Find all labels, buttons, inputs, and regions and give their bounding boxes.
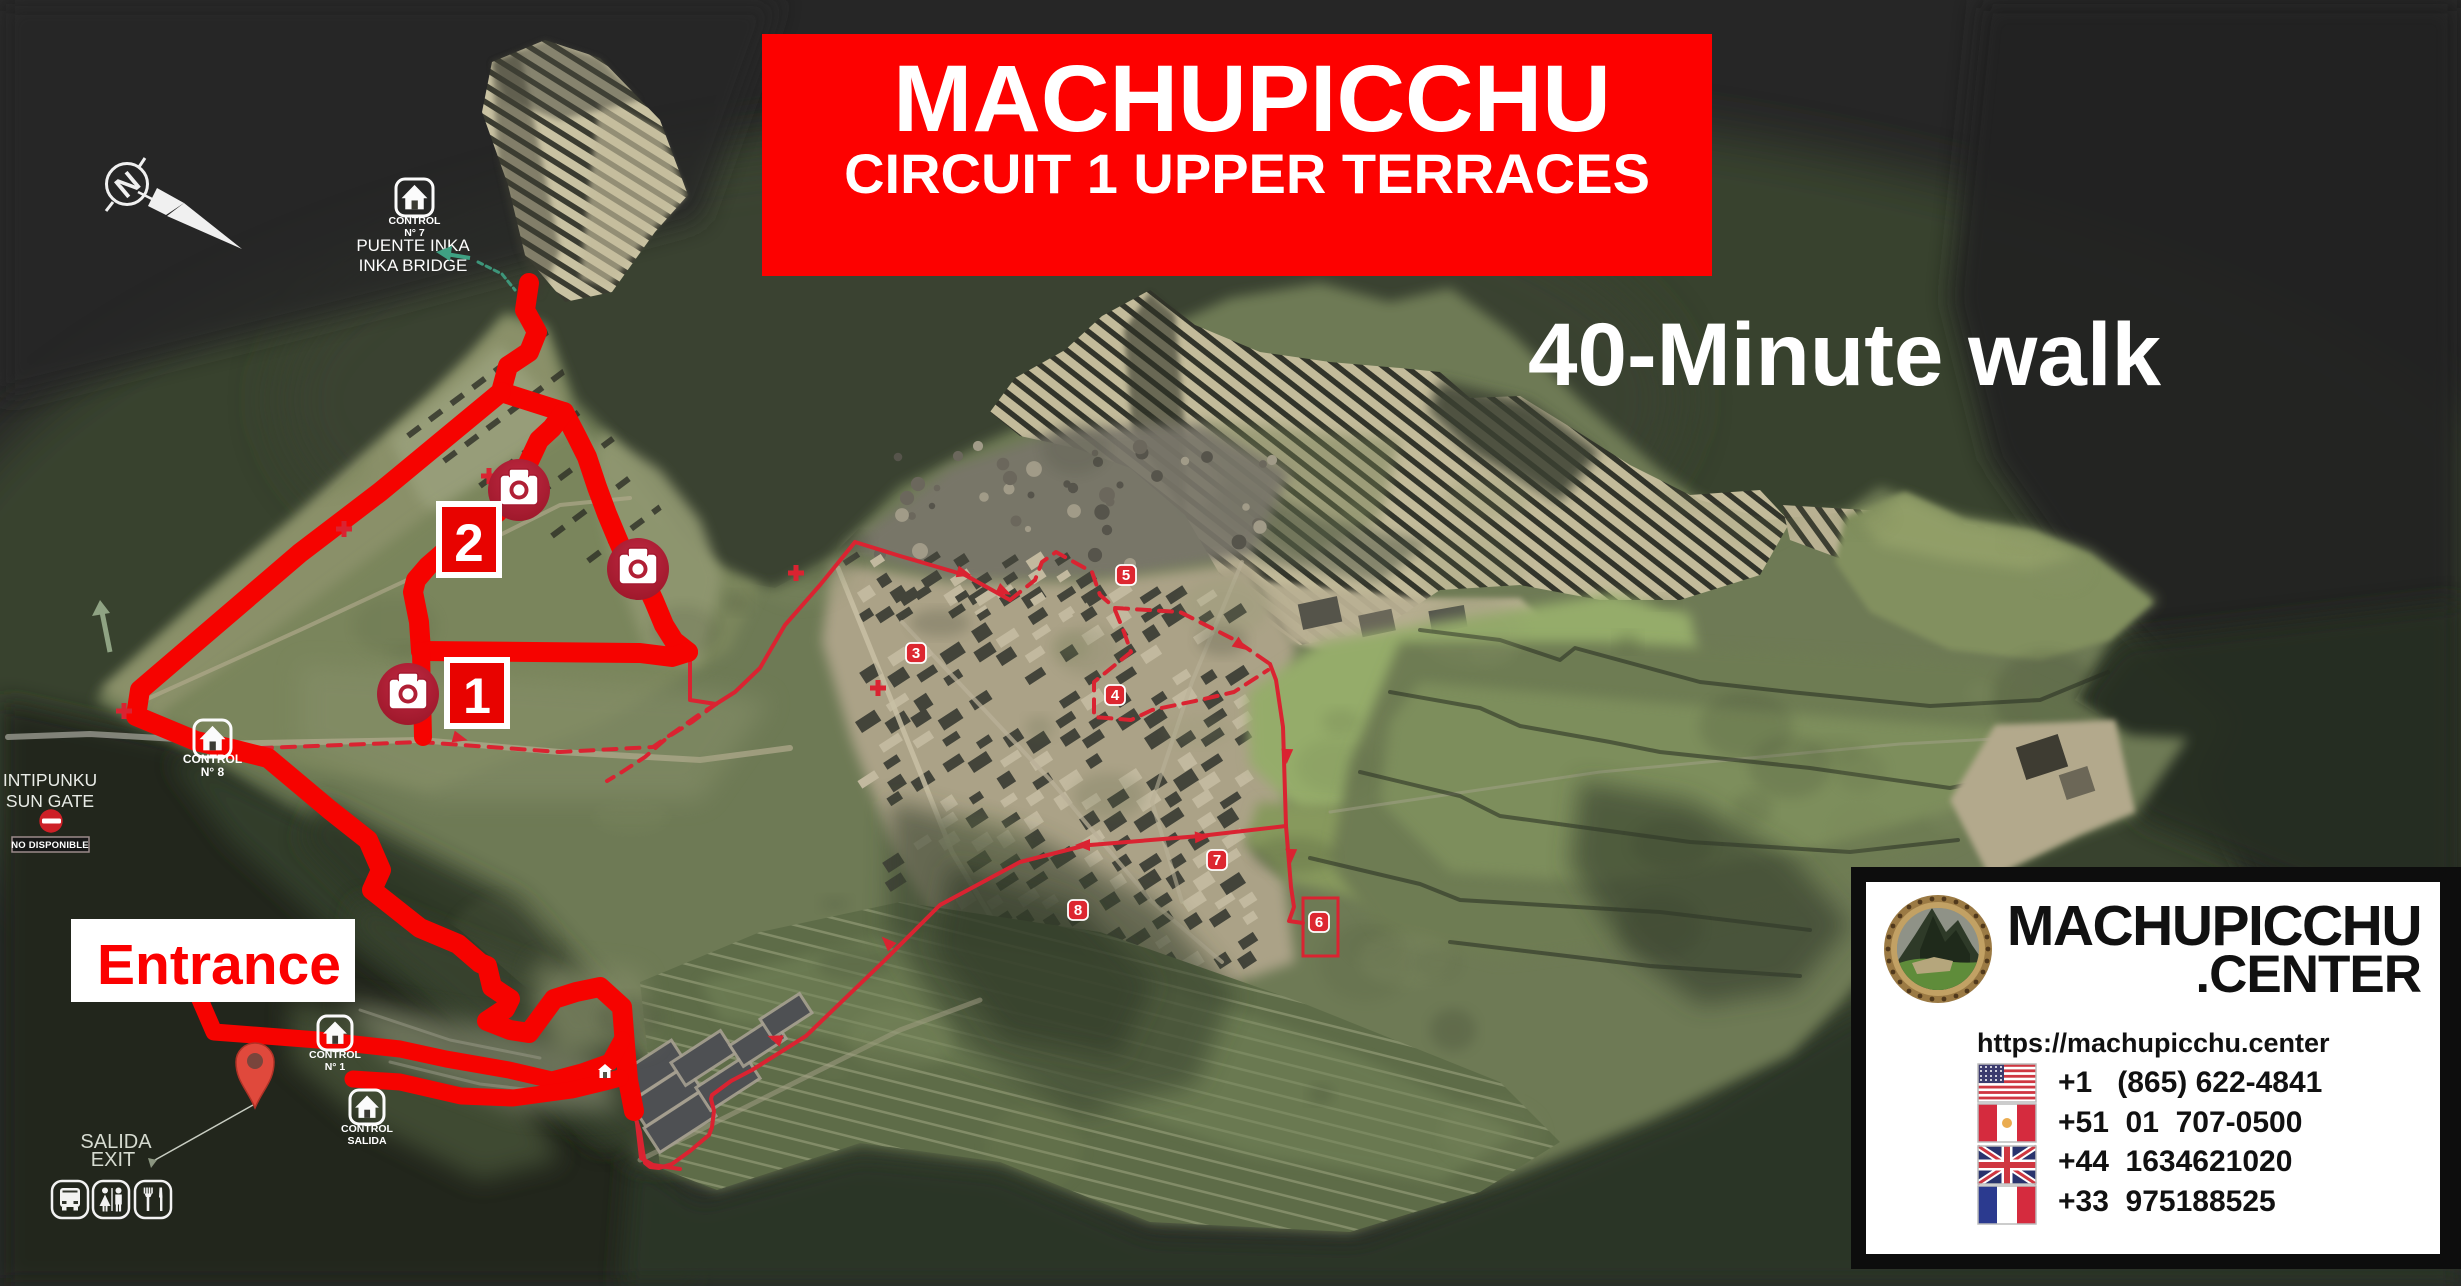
- svg-text:1: 1: [463, 668, 491, 724]
- svg-text:+33 975188525: +33 975188525: [2058, 1185, 2276, 1218]
- svg-text:PUENTE INKA: PUENTE INKA: [356, 236, 470, 255]
- svg-text:2: 2: [454, 514, 483, 573]
- svg-text:3: 3: [912, 645, 920, 662]
- svg-text:CONTROL: CONTROL: [309, 1049, 361, 1061]
- svg-text:6: 6: [1315, 914, 1323, 931]
- svg-text:SUN GATE: SUN GATE: [6, 791, 94, 811]
- svg-text:SALIDA: SALIDA: [347, 1135, 387, 1147]
- svg-text:CIRCUIT 1 UPPER TERRACES: CIRCUIT 1 UPPER TERRACES: [844, 142, 1650, 205]
- svg-text:INTIPUNKU: INTIPUNKU: [3, 770, 97, 790]
- svg-text:+44 1634621020: +44 1634621020: [2058, 1145, 2292, 1178]
- svg-text:NO DISPONIBLE: NO DISPONIBLE: [11, 840, 89, 851]
- svg-text:CONTROL: CONTROL: [341, 1123, 393, 1135]
- svg-text:5: 5: [1122, 567, 1130, 584]
- svg-text:+51 01 707-0500: +51 01 707-0500: [2058, 1106, 2302, 1139]
- svg-text:+1 (865) 622-4841: +1 (865) 622-4841: [2058, 1066, 2322, 1099]
- svg-text:INKA BRIDGE: INKA BRIDGE: [359, 256, 468, 275]
- svg-text:CONTROL: CONTROL: [183, 752, 242, 766]
- svg-text:40-Minute walk: 40-Minute walk: [1528, 304, 2162, 404]
- svg-text:4: 4: [1111, 687, 1120, 704]
- svg-text:Entrance: Entrance: [97, 933, 341, 997]
- svg-text:8: 8: [1074, 902, 1082, 919]
- svg-text:7: 7: [1213, 852, 1221, 869]
- svg-text:https://machupicchu.center: https://machupicchu.center: [1977, 1028, 2330, 1058]
- svg-text:CONTROL: CONTROL: [389, 215, 441, 227]
- svg-text:MACHUPICCHU: MACHUPICCHU: [893, 46, 1611, 152]
- svg-text:N° 8: N° 8: [201, 765, 225, 779]
- svg-text:.CENTER: .CENTER: [2195, 945, 2421, 1004]
- svg-text:EXIT: EXIT: [91, 1149, 135, 1171]
- svg-text:N° 1: N° 1: [325, 1061, 346, 1073]
